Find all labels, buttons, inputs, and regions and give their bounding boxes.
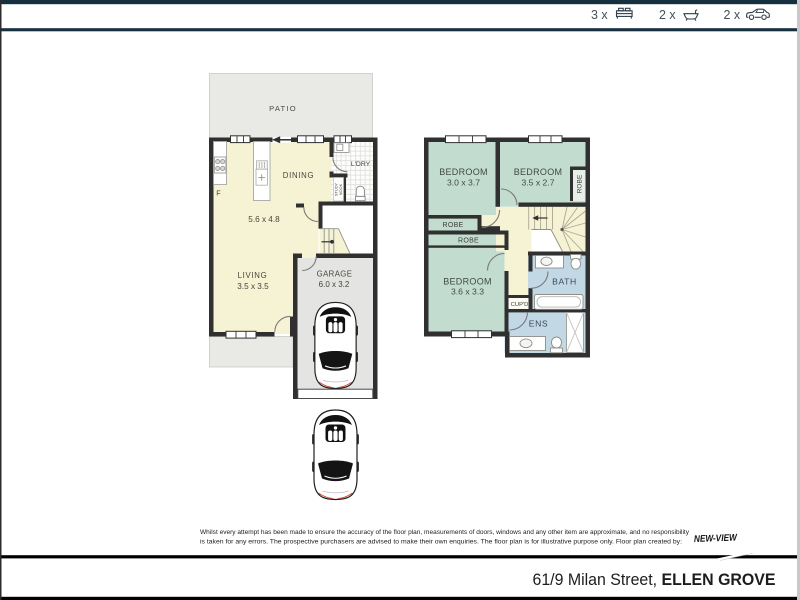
svg-text:3 x: 3 x	[591, 8, 608, 22]
svg-text:GARAGE: GARAGE	[317, 270, 353, 279]
svg-text:L'DRY: L'DRY	[351, 161, 371, 168]
svg-text:ROBE: ROBE	[458, 237, 479, 244]
svg-text:BEDROOM: BEDROOM	[514, 167, 563, 177]
svg-text:F: F	[216, 189, 221, 198]
svg-text:is taken for any errors. The p: is taken for any errors. The prospective…	[200, 539, 682, 546]
svg-text:Whilst every attempt has been: Whilst every attempt has been made to en…	[200, 529, 690, 536]
svg-text:ENS: ENS	[529, 319, 548, 329]
svg-text:DINING: DINING	[283, 171, 315, 180]
svg-text:3.6 x 3.3: 3.6 x 3.3	[451, 287, 484, 297]
svg-text:3.5 x 3.5: 3.5 x 3.5	[237, 282, 269, 291]
svg-text:2 x: 2 x	[724, 8, 741, 22]
svg-text:BATH: BATH	[552, 277, 577, 287]
svg-text:6.0 x 3.2: 6.0 x 3.2	[319, 280, 350, 289]
svg-text:CUP'D: CUP'D	[511, 302, 529, 308]
svg-text:ROBE: ROBE	[442, 222, 463, 229]
svg-text:NEW-VIEW: NEW-VIEW	[694, 532, 738, 545]
svg-text:3.5 x 2.7: 3.5 x 2.7	[522, 178, 555, 188]
svg-text:61/9 Milan Street, ELLEN GROVE: 61/9 Milan Street, ELLEN GROVE	[532, 571, 775, 589]
svg-text:NOOK: NOOK	[338, 183, 343, 195]
svg-text:BEDROOM: BEDROOM	[439, 167, 488, 177]
svg-text:BEDROOM: BEDROOM	[443, 277, 492, 287]
svg-text:5.6 x 4.8: 5.6 x 4.8	[248, 215, 280, 224]
svg-text:3.0 x 3.7: 3.0 x 3.7	[447, 178, 480, 188]
svg-text:LIVING: LIVING	[238, 271, 268, 280]
svg-text:2 x: 2 x	[659, 8, 676, 22]
svg-text:ROBE: ROBE	[577, 174, 584, 193]
svg-text:PATIO: PATIO	[269, 104, 297, 113]
